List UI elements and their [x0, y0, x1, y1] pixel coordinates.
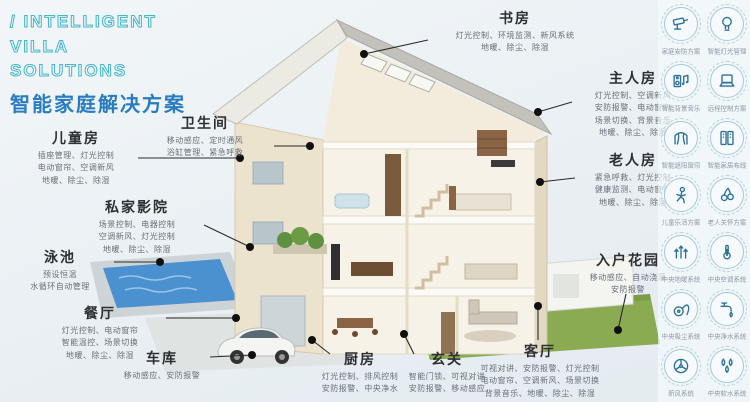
room-features: 灯光控制、环境监测、新风系统地暖、除尘、除湿: [430, 30, 600, 55]
room-name: 书房: [430, 8, 600, 28]
dining-table: [337, 318, 373, 328]
solution-label: 中央净水系统: [708, 332, 747, 341]
room-features: 插座管理、灯光控制电动窗帘、空调新风地暖、除尘、除湿: [14, 150, 138, 187]
callout-kids-room: 儿童房 插座管理、灯光控制电动窗帘、空调新风地暖、除尘、除湿: [14, 128, 138, 187]
rack-icon: [710, 121, 744, 155]
solution-item: 智能遮阳窗帘: [658, 116, 704, 173]
solution-item: 儿童乐活方案: [658, 173, 704, 230]
title-en-line3: SOLUTIONS: [10, 59, 200, 84]
solution-label: 儿童乐活方案: [662, 218, 701, 227]
solution-label: 家庭安防方案: [662, 47, 701, 56]
smart-villa-infographic: / INTELLIGENT VILLA SOLUTIONS 智能家庭解决方案 儿…: [0, 0, 750, 402]
care-icon: [710, 178, 744, 212]
solution-item: 老人关怀方案: [704, 173, 750, 230]
room-features: 预设恒温水循环自动管理: [8, 269, 112, 294]
curtain-icon: [664, 121, 698, 155]
room-features: 移动感应、安防报警: [116, 370, 208, 382]
solutions-icon-panel: 家庭安防方案 智能灯光管理 智能背景音乐 远程控制方案: [658, 0, 750, 402]
callout-bathroom: 卫生间 移动感应、定时通风浴缸管理、紧急呼救: [138, 113, 272, 160]
fan-icon: [664, 349, 698, 383]
room-name: 客厅: [455, 341, 625, 361]
laptop-icon: [710, 64, 744, 98]
callout-living-room: 客厅 可视对讲、安防报警、灯光控制电动窗帘、空调新风、场景切换背景音乐、地暖、除…: [455, 341, 625, 400]
solution-label: 中央软水系统: [708, 389, 747, 398]
title-en-line1: / INTELLIGENT: [10, 10, 200, 35]
title-cn: 智能家庭解决方案: [10, 88, 200, 117]
drops-icon: [710, 349, 744, 383]
bathtub: [335, 194, 369, 208]
title-en: / INTELLIGENT VILLA SOLUTIONS: [10, 10, 200, 84]
solution-item: 中央地暖系统: [658, 230, 704, 287]
wardrobe: [385, 154, 401, 216]
solution-item: 智能灯光管理: [704, 2, 750, 59]
solution-label: 中央吸尘系统: [662, 332, 701, 341]
solution-item: 中央吸尘系统: [658, 287, 704, 344]
title-en-line2: VILLA: [10, 35, 200, 60]
title-block: / INTELLIGENT VILLA SOLUTIONS 智能家庭解决方案: [10, 10, 200, 117]
solution-item: 家庭安防方案: [658, 2, 704, 59]
purifier-icon: [710, 292, 744, 326]
solution-label: 智能家居布线: [708, 161, 747, 170]
solution-label: 新风系统: [668, 389, 694, 398]
solution-label: 智能遮阳窗帘: [662, 161, 701, 170]
solution-item: 中央空调系统: [704, 230, 750, 287]
av-icon: [664, 64, 698, 98]
solution-label: 远程控制方案: [708, 104, 747, 113]
room-name: 车库: [116, 348, 208, 368]
solution-label: 中央地暖系统: [662, 275, 701, 284]
arrows-icon: [664, 235, 698, 269]
solution-item: 中央净水系统: [704, 287, 750, 344]
solution-item: 远程控制方案: [704, 59, 750, 116]
study-shelf: [477, 130, 507, 156]
vacuum-icon: [664, 292, 698, 326]
room-name: 私家影院: [72, 197, 202, 217]
solution-item: 新风系统: [658, 344, 704, 401]
room-features: 可视对讲、安防报警、灯光控制电动窗帘、空调新风、场景切换背景音乐、地暖、除尘、除…: [455, 363, 625, 400]
solution-label: 智能背景音乐: [662, 104, 701, 113]
child-icon: [664, 178, 698, 212]
solution-item: 智能背景音乐: [658, 59, 704, 116]
foyer-door: [441, 312, 455, 354]
solution-item: 中央软水系统: [704, 344, 750, 401]
master-bed: [455, 194, 511, 210]
solution-label: 老人关怀方案: [708, 218, 747, 227]
bulb-icon: [710, 7, 744, 41]
solution-label: 中央空调系统: [708, 275, 747, 284]
callout-study: 书房 灯光控制、环境监测、新风系统地暖、除尘、除湿: [430, 8, 600, 55]
roof-left: [213, 20, 347, 124]
camera-icon: [664, 7, 698, 41]
room-name: 儿童房: [14, 128, 138, 148]
callout-garage: 车库 移动感应、安防报警: [116, 348, 208, 382]
cinema-screen: [331, 244, 340, 280]
cinema-seats: [351, 262, 393, 276]
callout-pool: 泳池 预设恒温水循环自动管理: [8, 247, 112, 294]
thermo-icon: [710, 235, 744, 269]
elder-bed: [465, 264, 517, 279]
solution-label: 智能灯光管理: [708, 47, 747, 56]
room-name: 泳池: [8, 247, 112, 267]
solution-item: 智能家居布线: [704, 116, 750, 173]
room-name: 餐厅: [36, 303, 164, 323]
room-features: 移动感应、定时通风浴缸管理、紧急呼救: [138, 135, 272, 160]
